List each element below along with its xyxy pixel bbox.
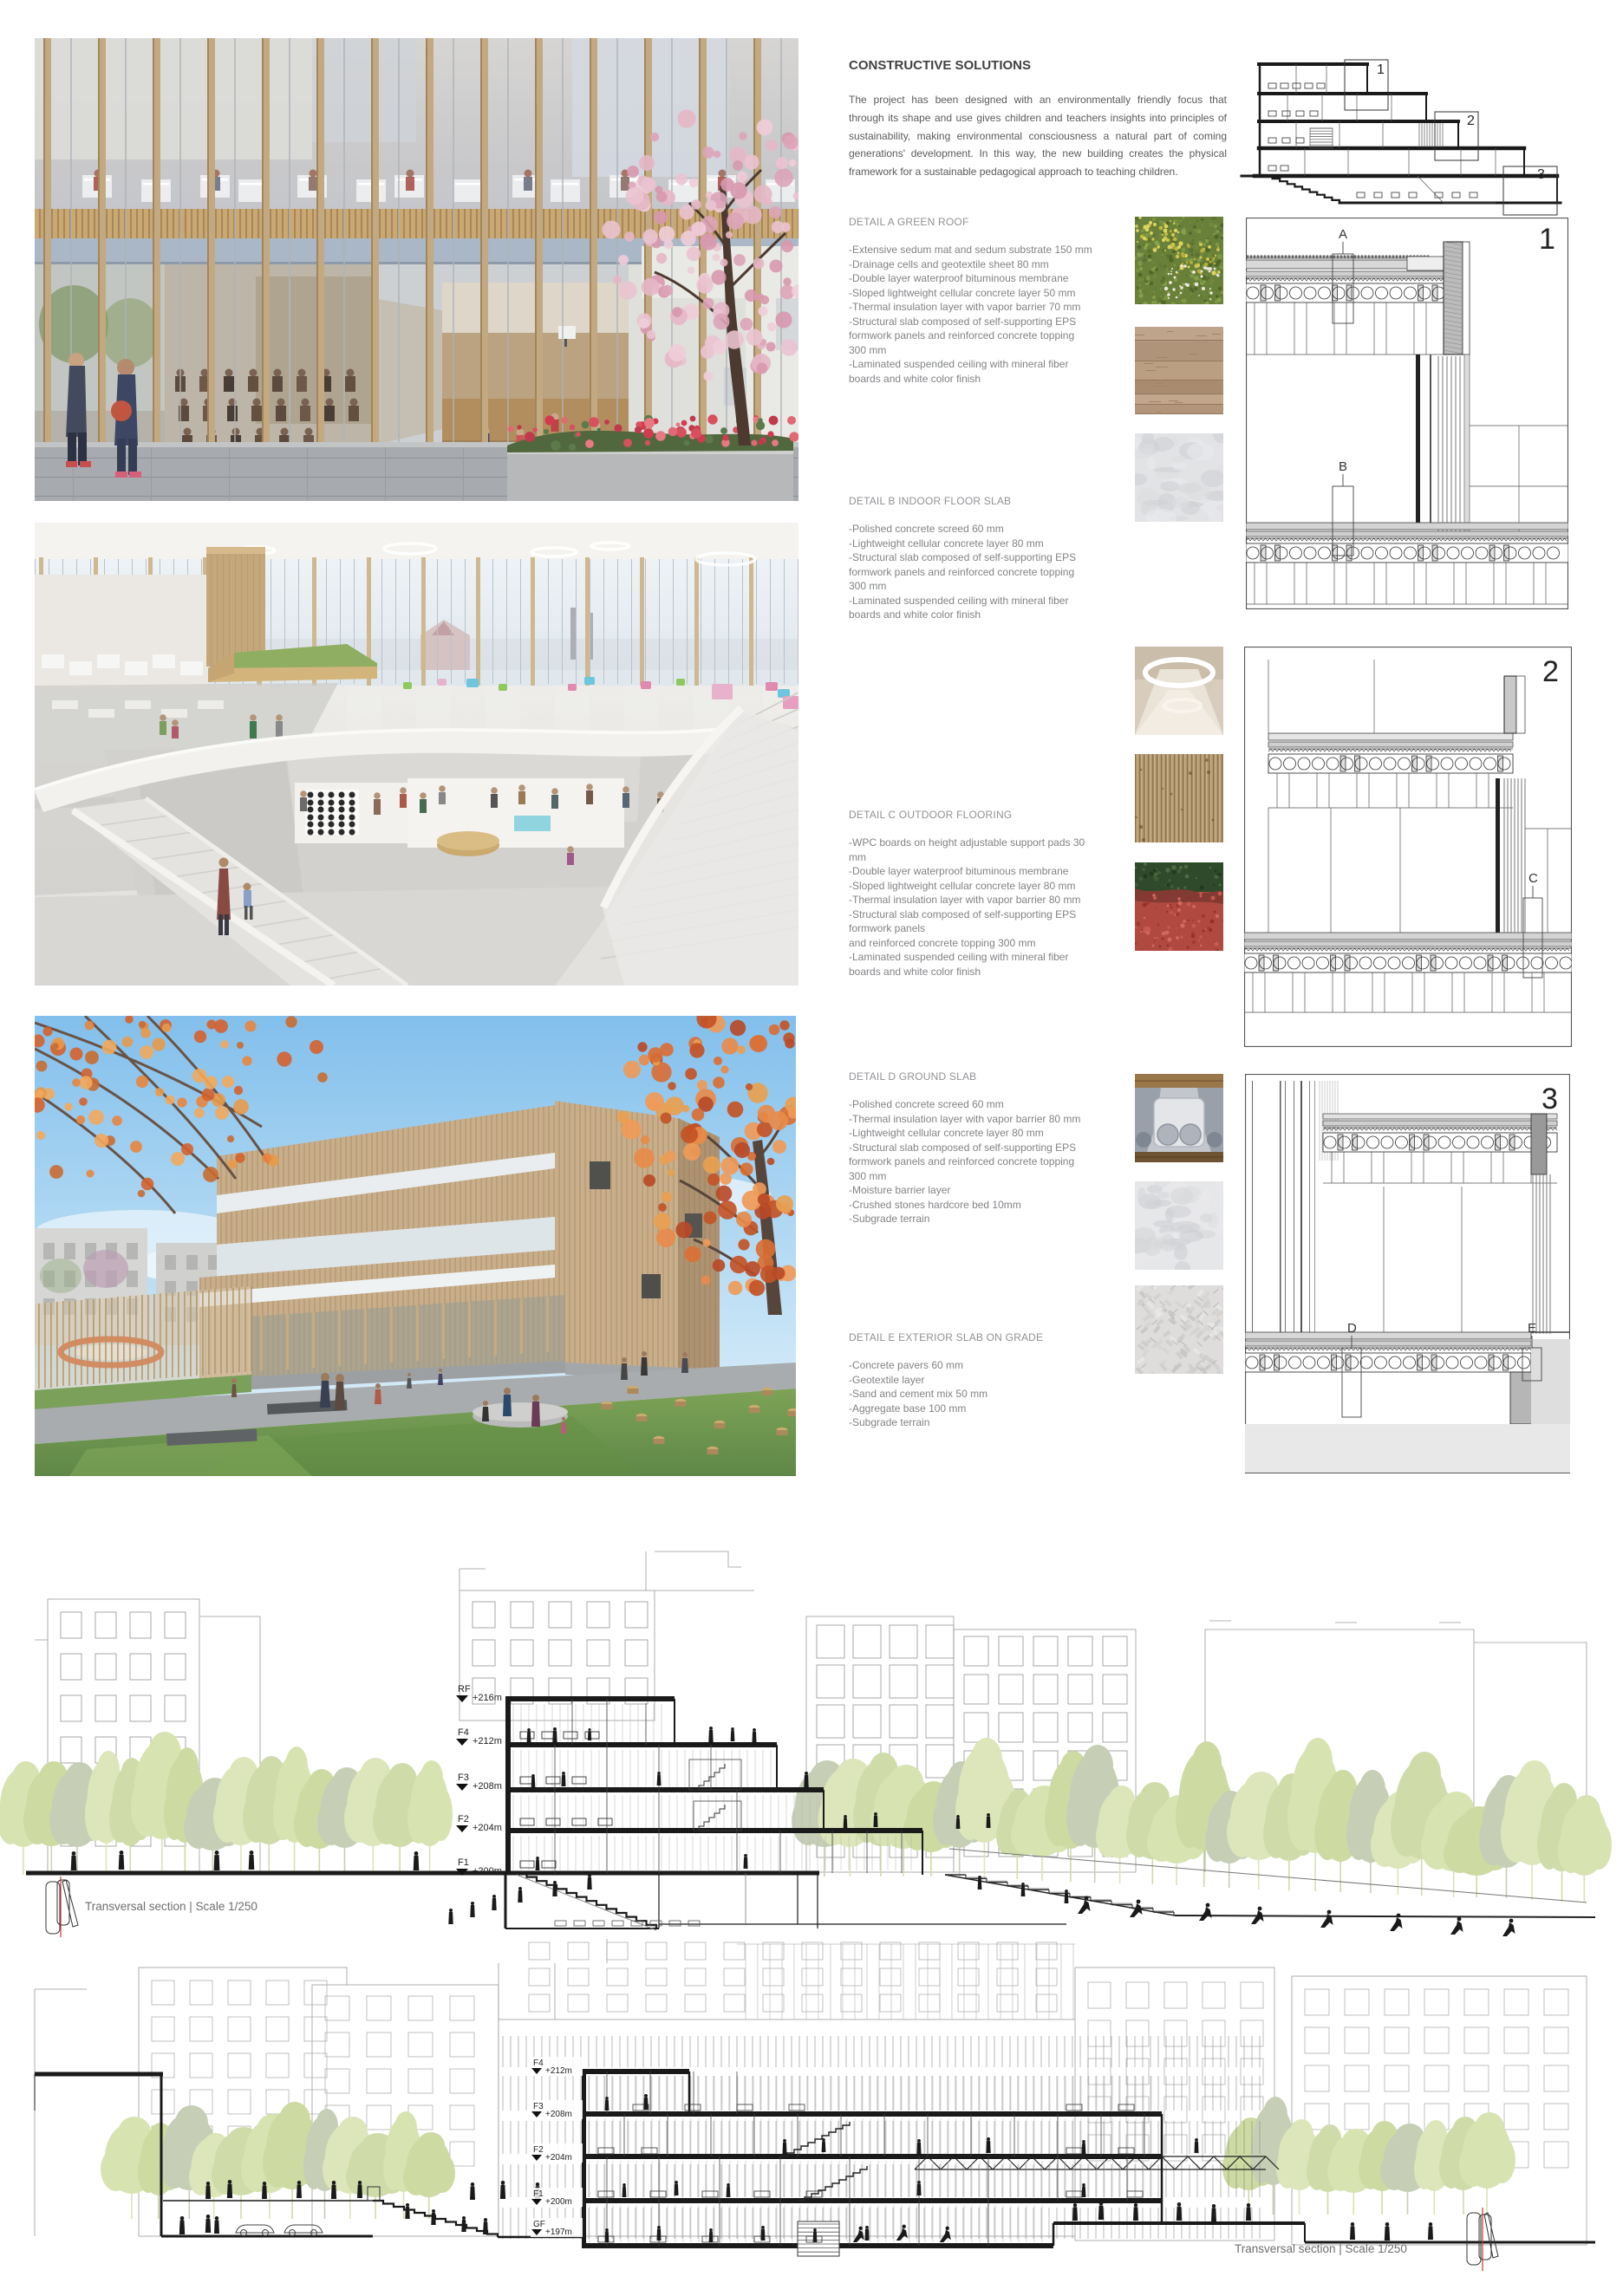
svg-text:F4: F4 — [533, 2059, 544, 2068]
svg-text:+212m: +212m — [473, 1736, 502, 1746]
svg-text:+200m: +200m — [545, 2197, 572, 2207]
svg-text:1: 1 — [1377, 62, 1385, 77]
svg-text:+208m: +208m — [545, 2110, 572, 2119]
svg-text:Transversal section | Scale 1/: Transversal section | Scale 1/250 — [1235, 2242, 1407, 2255]
svg-text:+200m: +200m — [473, 1866, 502, 1876]
svg-text:+212m: +212m — [545, 2066, 572, 2076]
svg-text:+208m: +208m — [473, 1781, 502, 1792]
svg-text:3: 3 — [1542, 1083, 1558, 1115]
svg-text:1: 1 — [1539, 223, 1555, 256]
svg-text:+216m: +216m — [473, 1693, 502, 1703]
svg-text:F1: F1 — [533, 2189, 544, 2199]
svg-text:F2: F2 — [458, 1814, 469, 1824]
svg-text:+197m: +197m — [545, 2228, 572, 2237]
svg-text:E: E — [1528, 1321, 1536, 1336]
svg-text:GF: GF — [533, 2220, 545, 2229]
svg-text:A: A — [1339, 227, 1347, 242]
svg-text:D: D — [1347, 1321, 1357, 1336]
svg-text:F3: F3 — [533, 2102, 544, 2111]
svg-text:RF: RF — [458, 1684, 471, 1694]
svg-text:2: 2 — [1467, 114, 1475, 128]
svg-text:B: B — [1339, 459, 1347, 474]
svg-text:Transversal section | Scale 1/: Transversal section | Scale 1/250 — [85, 1900, 257, 1913]
svg-text:F1: F1 — [458, 1857, 469, 1868]
svg-text:3: 3 — [1537, 167, 1545, 182]
svg-text:C: C — [1528, 871, 1538, 886]
svg-text:2: 2 — [1542, 655, 1559, 688]
svg-text:F4: F4 — [458, 1727, 469, 1738]
svg-text:+204m: +204m — [545, 2153, 572, 2163]
svg-text:+204m: +204m — [473, 1823, 502, 1833]
svg-text:F3: F3 — [458, 1772, 469, 1783]
svg-text:F2: F2 — [533, 2145, 544, 2155]
